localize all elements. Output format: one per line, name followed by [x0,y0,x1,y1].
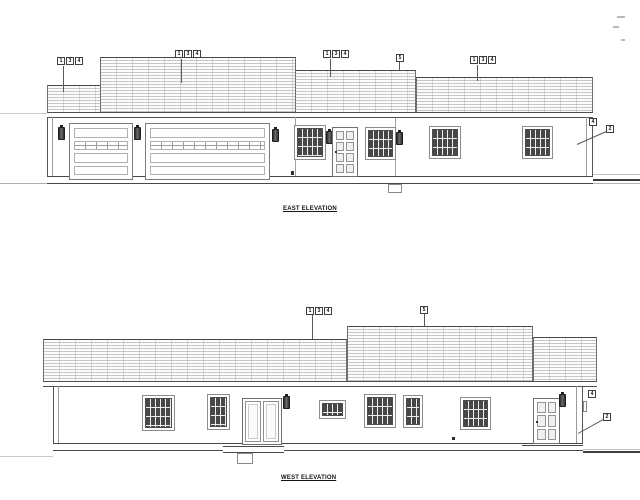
drawing-sheet: 1 3 4 1 3 4 1 3 4 5 1 3 4 4 2 EAST ELEVA… [0,0,640,500]
french-door [242,398,282,445]
keynote-tag-group: 5 [420,306,428,314]
keynote-number: 1 [470,56,478,64]
window [297,128,323,157]
window [367,397,393,425]
keynote-tag-group: 2 [606,125,614,133]
door-leaf [263,401,279,442]
keynote-number: 1 [57,57,65,65]
west-corner-trim-right [576,386,583,443]
keynote-number: 5 [420,306,428,314]
west-roof-section-2 [347,326,533,381]
keynote-number: 2 [603,413,611,421]
door-pane [548,415,557,426]
keynote-number: 1 [323,50,331,58]
garage-door-panel [150,153,265,163]
wall-vent [291,171,294,175]
keynote-number: 5 [396,54,404,62]
door-leaf [245,401,261,442]
keynote-tag-group: 4 [588,390,596,398]
door-pane [336,142,344,151]
garage-door-panel [150,128,265,138]
keynote-number: 4 [588,390,596,398]
west-corner-trim-left [53,386,59,443]
door-pane [336,164,344,173]
door-pane [537,429,546,440]
window [406,398,420,425]
east-roof-section-1 [47,85,101,112]
keynote-number: 1 [175,50,183,58]
east-elevation-title: EAST ELEVATION [283,206,337,212]
door-pane [336,153,344,162]
window [463,400,488,427]
door-pane [336,131,344,140]
keynote-tag-group: 1 3 4 [175,50,201,58]
wall-vent [452,437,455,440]
window [432,129,458,156]
keynote-tag-group: 5 [396,54,404,62]
east-eave-fascia [47,112,593,118]
grade-line-right [593,174,640,175]
leader-line [424,314,425,326]
garage-door-window-panel [74,141,128,151]
east-roof-section-3 [295,70,416,112]
west-roof-section-1 [43,339,347,381]
corner-mark [613,26,619,28]
grade-line-left [0,113,47,114]
keynote-number: 4 [193,50,201,58]
leader-line [477,65,478,81]
wall-light-icon [58,127,65,140]
keynote-number: 4 [488,56,496,64]
ground-line-dark [593,179,640,181]
keynote-tag-group: 1 3 4 [57,57,83,65]
window [145,398,172,428]
leader-line [63,66,64,92]
window [368,130,393,157]
door-knob-icon [536,421,538,423]
ground-line-dark [583,451,640,453]
door-pane [346,153,354,162]
wall-light-icon [559,394,566,407]
wall-light-icon [283,396,290,409]
door-pane [537,402,546,413]
keynote-tag-group: 1 3 4 [306,307,332,315]
west-elevation-title: WEST ELEVATION [281,475,336,481]
west-roof-section-3 [533,337,597,381]
grade-line-left [0,456,53,457]
garage-door-panel [74,153,128,163]
leader-line [399,62,400,71]
keynote-number: 3 [315,307,323,315]
door-pane [548,402,557,413]
keynote-number: 3 [479,56,487,64]
garage-door-panel [74,166,128,176]
leader-line [181,59,182,83]
keynote-number: 4 [75,57,83,65]
door-knob-icon [335,151,337,153]
door-pane [537,415,546,426]
door-pane [346,164,354,173]
garage-door-window-panel [150,141,265,151]
window [525,129,550,156]
door-pane [548,429,557,440]
footing-pier [237,453,253,464]
leader-line [312,315,313,339]
west-eave-fascia [43,381,597,387]
wall-light-icon [396,132,403,145]
corner-mark [617,16,625,18]
door-step [223,446,284,453]
wall-vent [583,401,587,412]
west-base-band [53,443,583,451]
window [210,397,227,427]
keynote-tag-group: 1 3 4 [323,50,349,58]
footing-pier [388,184,402,193]
corner-mark [621,39,625,41]
east-corner-trim-left [47,117,53,176]
east-wall-joint [295,117,296,176]
window [322,403,343,416]
keynote-tag-group: 2 [603,413,611,421]
garage-door-panel [74,128,128,138]
wall-light-icon [272,129,279,142]
grade-line-right [583,449,640,450]
keynote-number: 4 [324,307,332,315]
door-pane [346,131,354,140]
keynote-number: 4 [341,50,349,58]
keynote-number: 3 [332,50,340,58]
door-step [522,445,583,451]
keynote-number: 3 [184,50,192,58]
leader-line [330,59,331,77]
keynote-tag-group: 4 [589,118,597,126]
west-wall [53,386,583,443]
east-wall-joint [395,118,396,176]
keynote-number: 1 [306,307,314,315]
keynote-number: 4 [589,118,597,126]
wall-light-icon [134,127,141,140]
east-roof-section-2 [100,57,296,112]
keynote-number: 2 [606,125,614,133]
garage-door-double [145,123,270,180]
door-pane [346,142,354,151]
keynote-number: 3 [66,57,74,65]
east-roof-section-4 [416,77,593,112]
garage-door-single [69,123,133,180]
garage-door-panel [150,166,265,176]
keynote-tag-group: 1 3 4 [470,56,496,64]
